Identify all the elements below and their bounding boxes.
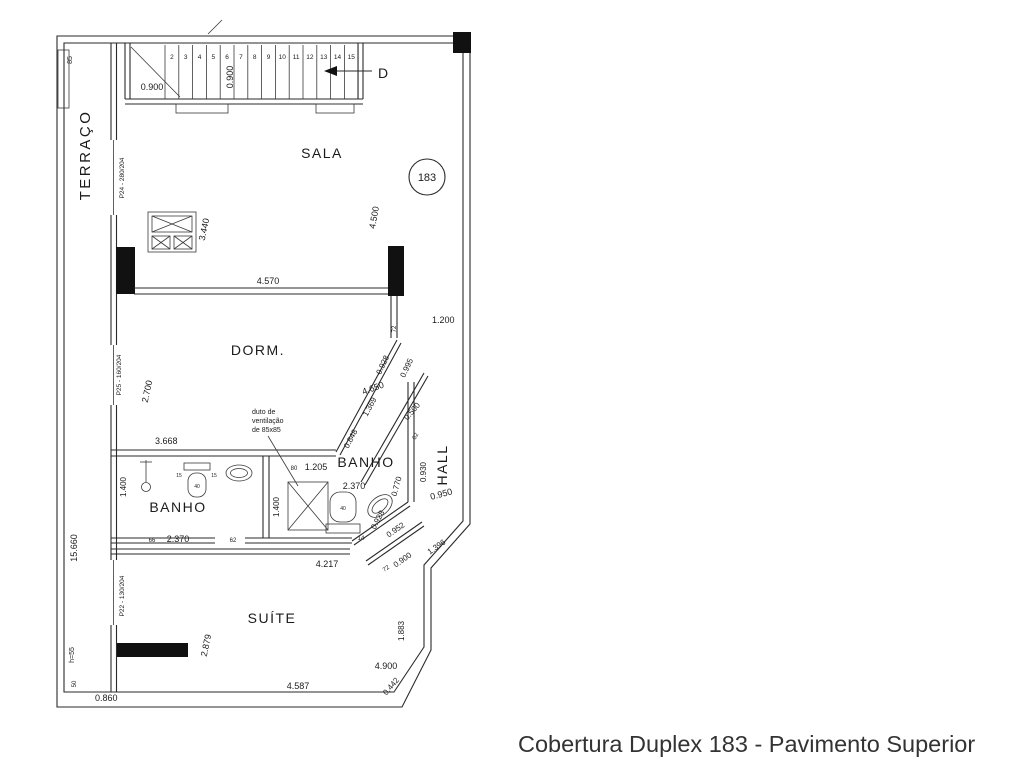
vent-note-line1: duto de bbox=[252, 409, 275, 416]
toilet-icon bbox=[184, 463, 210, 497]
mark-85: 85 bbox=[67, 56, 74, 64]
mark-72a: 72 bbox=[392, 325, 398, 332]
mark-62b: 62 bbox=[230, 538, 237, 544]
stair-dim-mid: 0.900 bbox=[225, 66, 235, 89]
pillar-left bbox=[116, 247, 135, 294]
dim-hall-0930: 0.930 bbox=[419, 461, 428, 482]
dim-terraco-height: 15.660 bbox=[69, 534, 79, 562]
dorm-bottom-wall bbox=[111, 450, 336, 456]
dim-sala-depth: 4.500 bbox=[367, 206, 381, 230]
dim-banho2-height: 1.400 bbox=[272, 496, 281, 517]
sink-icon bbox=[226, 465, 252, 481]
banho2-label: BANHO bbox=[337, 454, 394, 470]
stair-notch-right bbox=[316, 104, 354, 113]
mark-40a: 40 bbox=[194, 484, 200, 490]
floor-plan-page: 2 3 4 5 6 7 8 9 10 11 12 13 14 15 0.900 … bbox=[0, 0, 1024, 768]
mark-15a: 15 bbox=[176, 473, 182, 479]
stairs: 2 3 4 5 6 7 8 9 10 11 12 13 14 15 0.900 … bbox=[125, 20, 388, 113]
door-label-p24: P24 - 280/204 bbox=[119, 157, 126, 198]
dim-0995: 0.995 bbox=[398, 356, 415, 378]
terraco-label: TERRAÇO bbox=[77, 110, 94, 201]
shower-icon bbox=[140, 460, 152, 492]
stair-number: 3 bbox=[184, 54, 188, 61]
suite-room: 4.217 SUÍTE 2.879 1.883 4.900 0.442 4.58… bbox=[111, 549, 406, 697]
stair-number: 8 bbox=[253, 54, 257, 61]
stair-number: 10 bbox=[279, 54, 287, 61]
suite-black-wall bbox=[117, 643, 188, 657]
dim-sala-width: 4.570 bbox=[257, 276, 280, 286]
dim-sala-shaft: 3.440 bbox=[197, 217, 211, 241]
dorm-room: DORM. 2.700 3.668 1.200 72 0.928 0.995 4… bbox=[111, 315, 455, 502]
dim-suite-4900: 4.900 bbox=[375, 661, 398, 671]
mark-50: 50 bbox=[72, 680, 78, 687]
sala-dorm-wall bbox=[134, 246, 404, 338]
dim-suite-diag: 2.879 bbox=[199, 633, 213, 657]
dim-hall-0950: 0.950 bbox=[429, 486, 453, 501]
dim-dorm-width: 3.668 bbox=[155, 436, 178, 446]
stair-dim-start: 0.900 bbox=[141, 82, 164, 92]
dim-right-gap: 1.200 bbox=[432, 315, 455, 325]
stair-number: 9 bbox=[267, 54, 271, 61]
dim-banho2-1205: 1.205 bbox=[305, 462, 328, 472]
mark-80: 80 bbox=[291, 466, 298, 472]
vent-note: duto de ventilação de 85x85 bbox=[252, 409, 298, 486]
mark-66: 66 bbox=[149, 538, 156, 544]
mark-72b: 72 bbox=[382, 564, 391, 573]
stair-number: 7 bbox=[239, 54, 243, 61]
banho2-room: 80 1.205 BANHO 2.370 1.400 40 14 0.928 0… bbox=[272, 454, 404, 542]
sala-shaft-icon bbox=[148, 212, 196, 252]
stair-number: 6 bbox=[225, 54, 229, 61]
dim-suite-top: 4.217 bbox=[316, 559, 339, 569]
suite-label: SUÍTE bbox=[248, 610, 297, 626]
vent-leader-line bbox=[268, 436, 298, 486]
corner-column bbox=[453, 32, 471, 53]
dim-banho2-width: 2.370 bbox=[343, 481, 366, 491]
terraco-area: TERRAÇO 85 P24 - 280/204 P25 - 160/204 P… bbox=[67, 56, 126, 703]
suite-top-wall bbox=[111, 549, 350, 554]
toilet2-icon bbox=[326, 492, 360, 533]
vent-note-line2: ventilação bbox=[252, 418, 284, 425]
mark-h55: h=55 bbox=[69, 647, 76, 663]
dim-terraco-width: 0.860 bbox=[95, 693, 118, 703]
dim-0900: 0.900 bbox=[392, 550, 414, 569]
unit-number: 183 bbox=[418, 172, 436, 184]
dim-banho1-width: 2.370 bbox=[167, 534, 190, 544]
mark-15b: 15 bbox=[211, 473, 217, 479]
pillar-right bbox=[388, 246, 404, 296]
stair-number: 5 bbox=[211, 54, 215, 61]
stair-number: 12 bbox=[306, 54, 314, 61]
mark-62a: 62 bbox=[412, 432, 421, 441]
stair-number: 2 bbox=[170, 54, 174, 61]
southeast-chamfers: 0.952 0.900 1.396 72 bbox=[352, 502, 448, 574]
dim-0848: 0.848 bbox=[342, 427, 360, 449]
dim-dorm-depth: 2.700 bbox=[140, 379, 154, 403]
dim-banho1-height: 1.400 bbox=[119, 476, 128, 497]
vent-note-line3: de 85x85 bbox=[252, 427, 281, 434]
drawing-caption: Cobertura Duplex 183 - Pavimento Superio… bbox=[518, 731, 975, 757]
dim-1369: 1.369 bbox=[361, 395, 379, 417]
stair-number: 13 bbox=[320, 54, 328, 61]
banho-divider-wall bbox=[263, 456, 269, 538]
dim-banho2-0770: 0.770 bbox=[390, 475, 404, 497]
dim-0500: 0.500 bbox=[402, 400, 422, 422]
stair-box bbox=[125, 43, 363, 104]
hall-area: HALL 0.930 0.950 bbox=[419, 444, 453, 501]
stair-direction-label: D bbox=[378, 65, 388, 81]
stair-notch-left bbox=[176, 104, 228, 113]
banho2-shaft-icon bbox=[288, 482, 328, 530]
dim-0952: 0.952 bbox=[385, 520, 407, 539]
sala-label: SALA bbox=[301, 145, 343, 161]
stair-number: 15 bbox=[348, 54, 356, 61]
door-label-p25: P25 - 160/204 bbox=[116, 354, 123, 395]
floor-plan-drawing: 2 3 4 5 6 7 8 9 10 11 12 13 14 15 0.900 … bbox=[0, 0, 1024, 768]
mark-40b: 40 bbox=[340, 506, 346, 512]
stair-number: 11 bbox=[293, 54, 300, 61]
banho1-label: BANHO bbox=[149, 499, 206, 515]
dim-suite-width: 4.587 bbox=[287, 681, 310, 691]
stair-number: 14 bbox=[334, 54, 342, 61]
dim-suite-1883: 1.883 bbox=[397, 620, 406, 641]
door-label-p22: P22 - 130/204 bbox=[119, 575, 126, 616]
dorm-label: DORM. bbox=[231, 342, 285, 358]
stair-number: 4 bbox=[198, 54, 202, 61]
hall-label: HALL bbox=[434, 444, 450, 485]
